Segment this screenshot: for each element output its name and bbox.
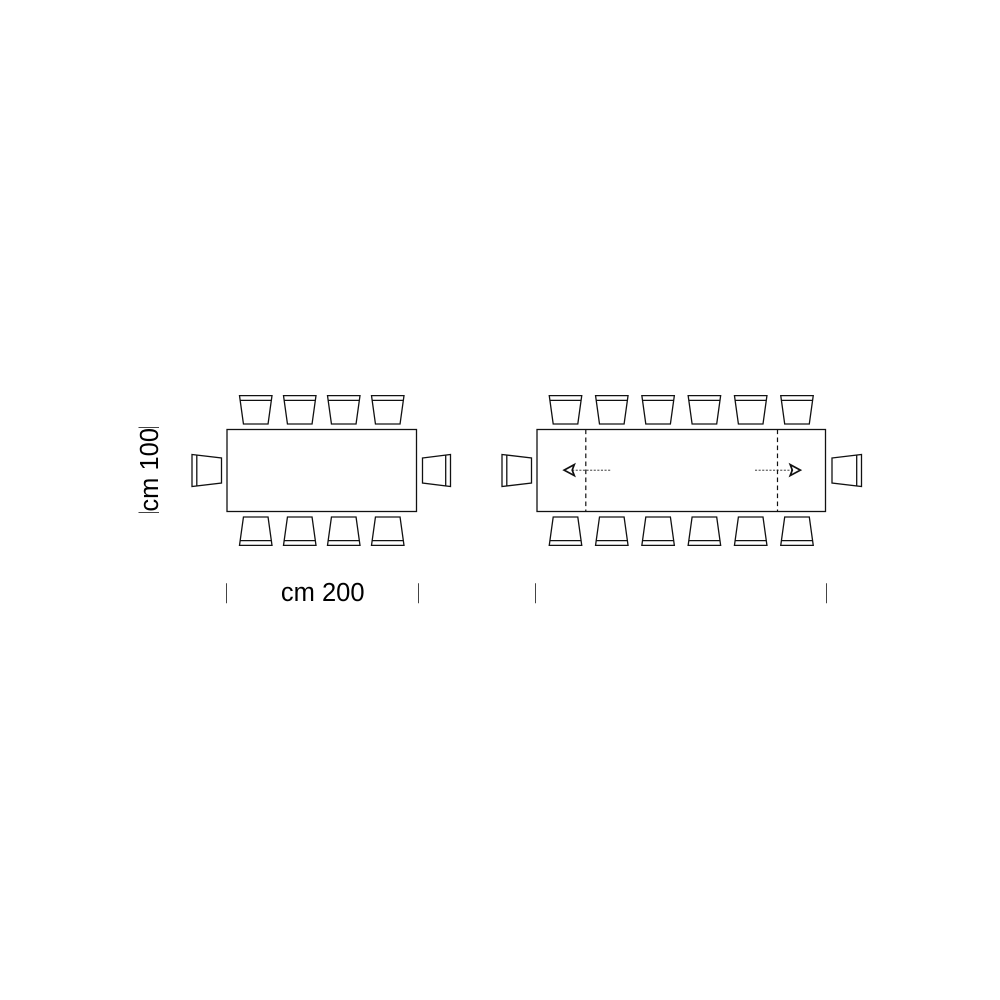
svg-text:cm 200: cm 200 (281, 579, 365, 607)
svg-text:cm 100: cm 100 (136, 428, 164, 512)
